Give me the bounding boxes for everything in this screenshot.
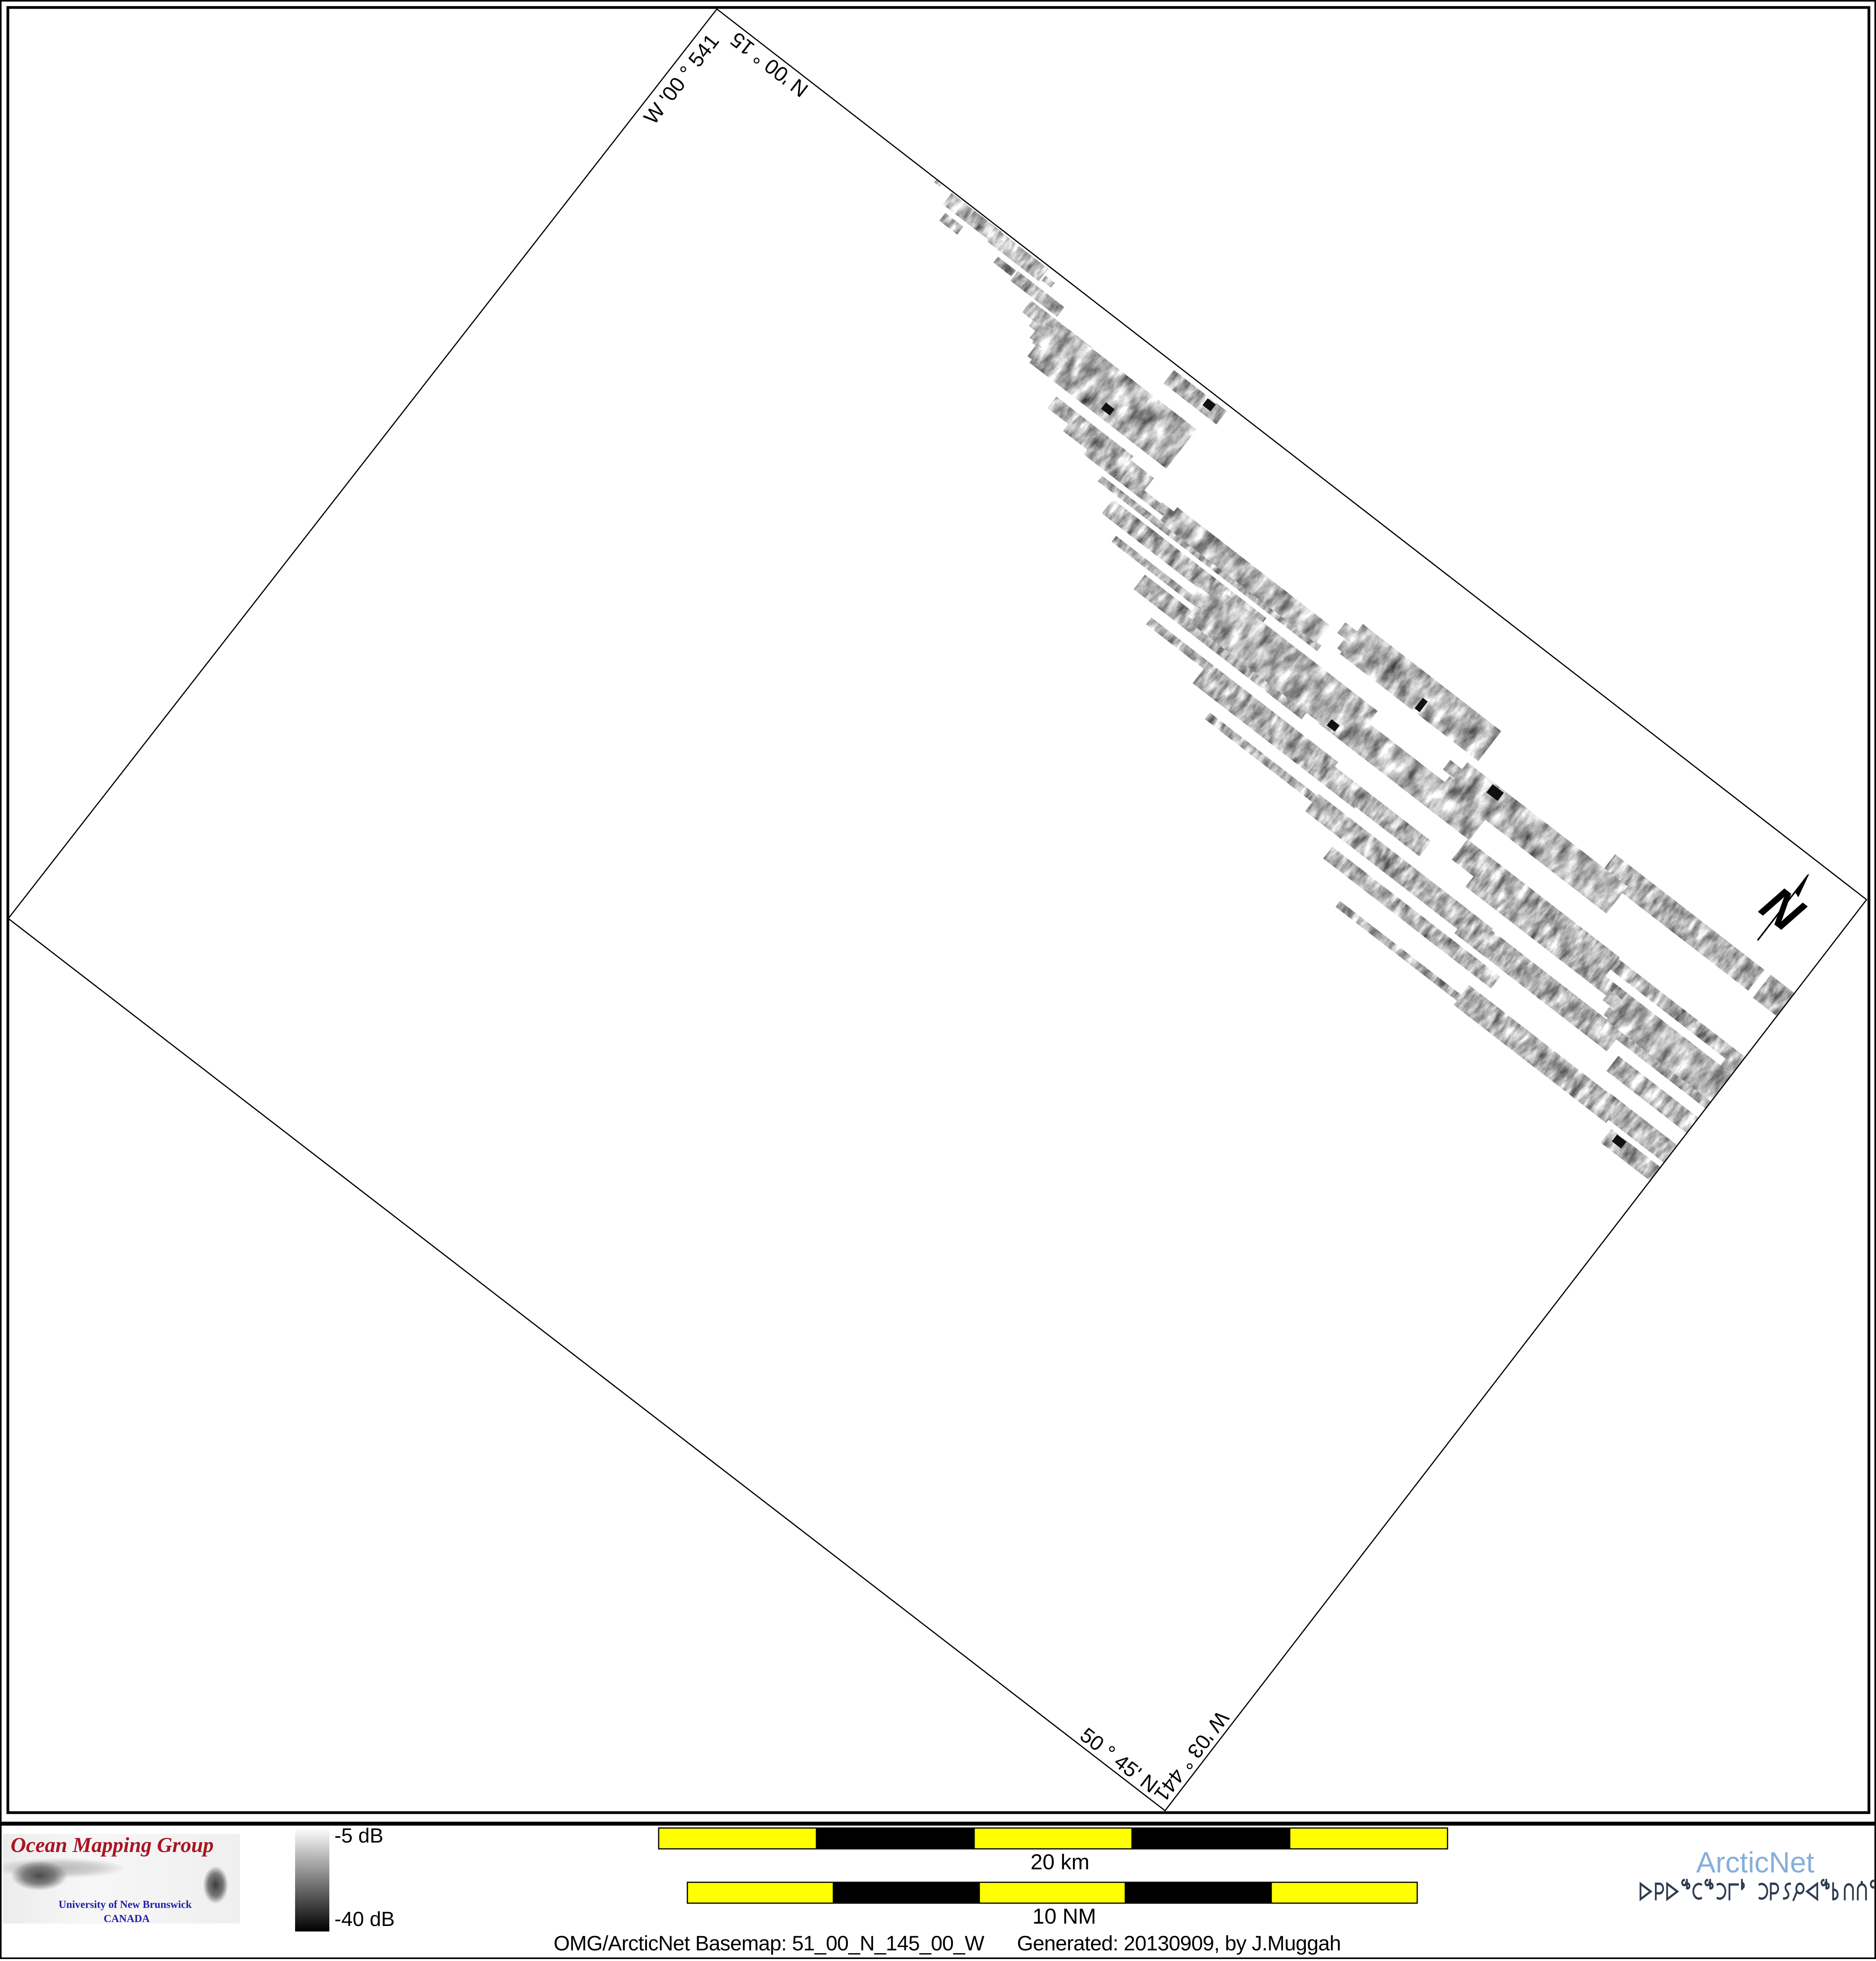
svg-text:CANADA: CANADA [104, 1913, 150, 1924]
svg-text:20 km: 20 km [1030, 1850, 1089, 1874]
svg-text:Ocean Mapping Group: Ocean Mapping Group [11, 1833, 214, 1857]
svg-text:University of New Brunswick: University of New Brunswick [59, 1898, 192, 1910]
svg-text:ArcticNet: ArcticNet [1696, 1846, 1815, 1879]
svg-text:-5 dB: -5 dB [334, 1824, 383, 1847]
svg-text:OMG/ArcticNet Basemap: 51_00_N: OMG/ArcticNet Basemap: 51_00_N_145_00_W … [554, 1932, 1341, 1955]
svg-text:10 NM: 10 NM [1032, 1904, 1096, 1928]
svg-text:-40 dB: -40 dB [334, 1908, 395, 1931]
